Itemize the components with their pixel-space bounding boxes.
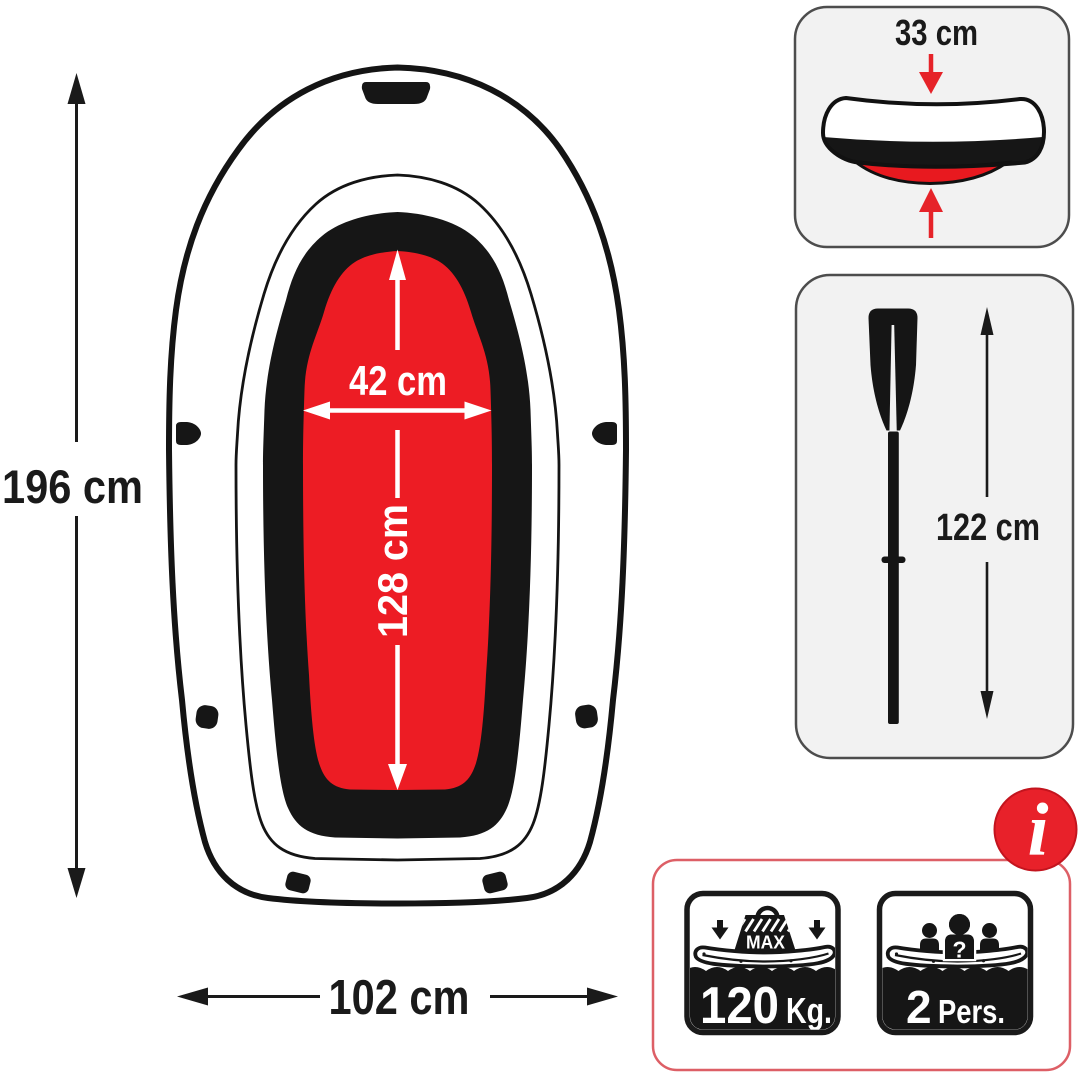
svg-text:102 cm: 102 cm — [329, 971, 470, 1025]
svg-text:122 cm: 122 cm — [936, 507, 1040, 549]
svg-text:42 cm: 42 cm — [349, 357, 447, 404]
svg-text:i: i — [1028, 789, 1049, 872]
svg-text:33 cm: 33 cm — [895, 12, 978, 53]
svg-text:?: ? — [952, 937, 966, 963]
svg-text:Kg.: Kg. — [786, 990, 832, 1031]
svg-text:128 cm: 128 cm — [369, 504, 416, 638]
svg-text:196 cm: 196 cm — [2, 460, 143, 513]
svg-text:MAX: MAX — [746, 932, 786, 953]
svg-text:120: 120 — [700, 977, 779, 1035]
svg-text:Pers.: Pers. — [938, 993, 1005, 1030]
svg-text:2: 2 — [906, 981, 932, 1033]
